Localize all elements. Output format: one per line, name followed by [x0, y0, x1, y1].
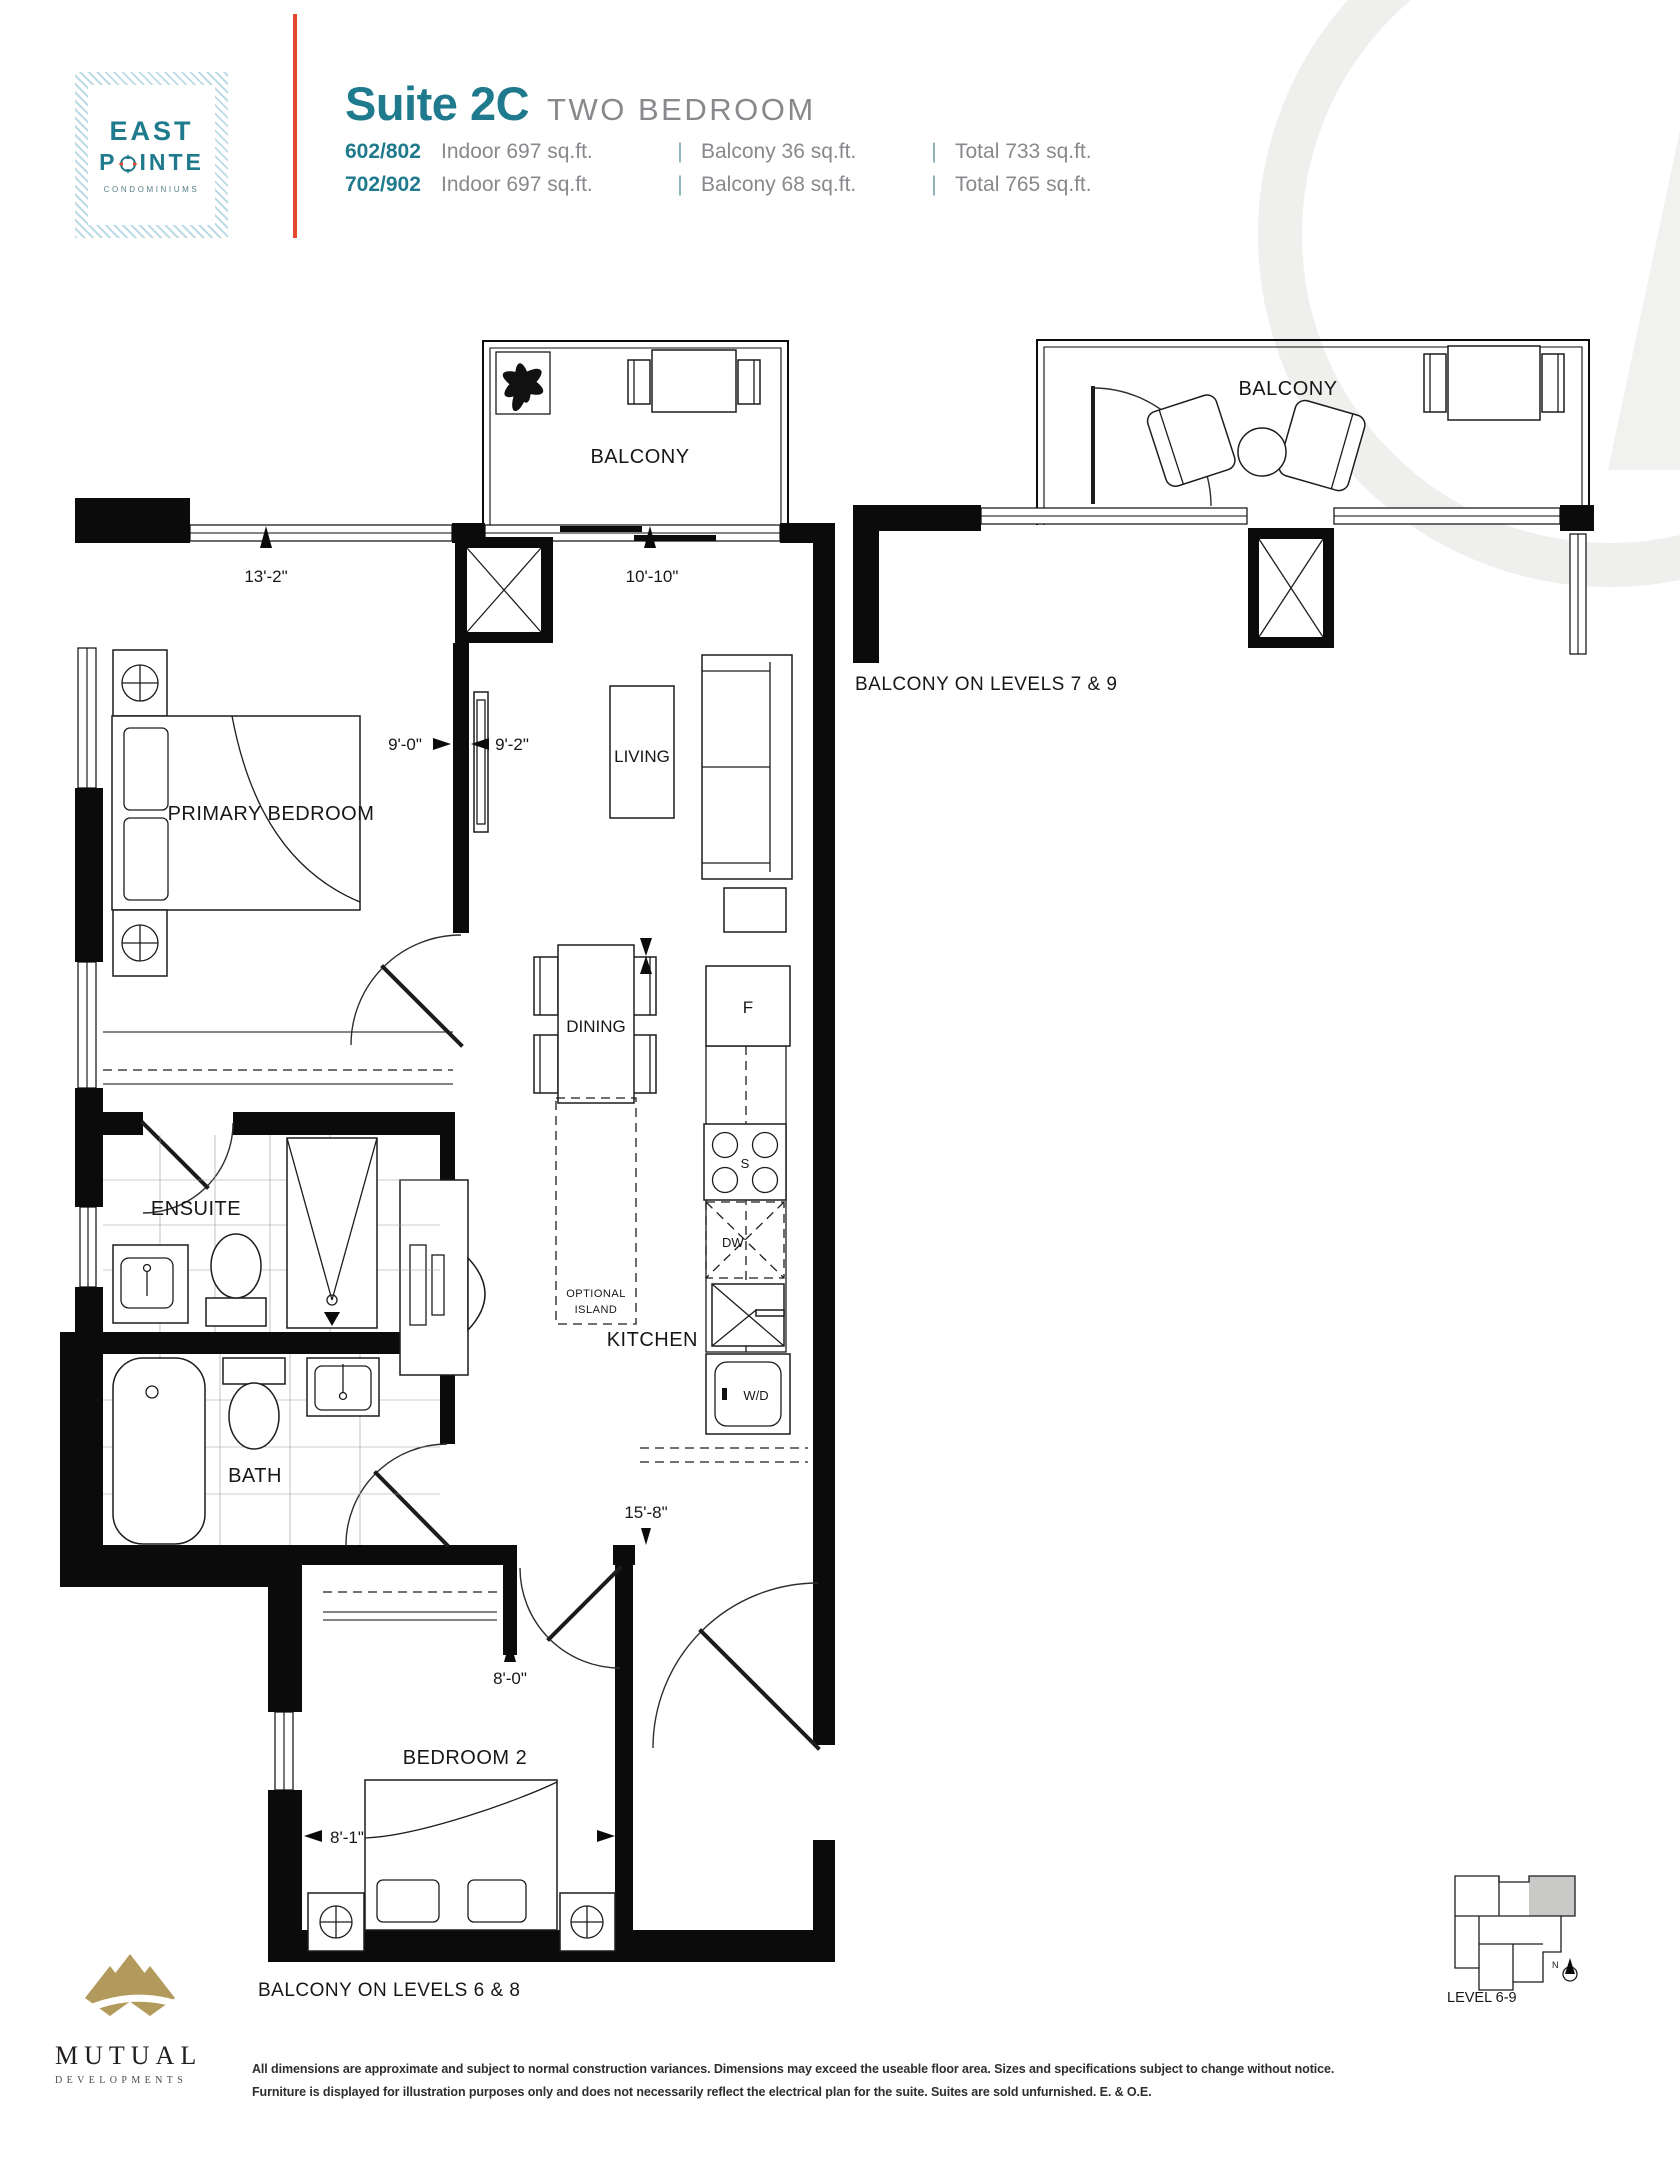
fridge-label: F — [743, 998, 753, 1017]
optional-island-label-2: ISLAND — [575, 1304, 618, 1316]
dim-primary-width: 13'-2" — [244, 567, 287, 586]
alt-room-label-balcony: BALCONY — [1238, 378, 1337, 400]
alt-dining-table — [1424, 346, 1564, 420]
bedroom2-bed — [308, 1780, 615, 1951]
keyplan-level-label: LEVEL 6-9 — [1447, 1990, 1517, 2006]
bath-toilet — [223, 1358, 285, 1449]
disclaimer: All dimensions are approximate and subje… — [252, 2058, 1342, 2104]
plant-icon — [496, 352, 550, 414]
dishwasher: DW — [706, 1202, 784, 1278]
developer-name: MUTUAL — [55, 2041, 245, 2071]
dim-living-depth: 9'-2" — [495, 735, 529, 754]
room-label-primary-bedroom: PRIMARY BEDROOM — [168, 803, 375, 825]
dim-living-width: 10'-10" — [626, 567, 679, 586]
round-table — [1238, 428, 1286, 476]
bath-sink — [307, 1358, 379, 1416]
room-label-balcony: BALCONY — [590, 446, 689, 468]
bedroom2-door — [520, 1568, 620, 1668]
floorplan-page: EAST P INTE CONDOMINIUMS Suite 2 — [0, 0, 1680, 2174]
balcony-table — [628, 350, 760, 412]
ensuite-sink — [113, 1245, 188, 1323]
window-top-bedroom — [190, 525, 452, 541]
optional-island: OPTIONAL ISLAND — [556, 1098, 636, 1324]
bathtub — [113, 1358, 205, 1544]
kitchen-sink — [712, 1284, 784, 1346]
room-label-bath: BATH — [228, 1465, 282, 1487]
alt-window-right — [1334, 508, 1560, 524]
north-compass-icon: N — [1552, 1958, 1577, 1981]
room-label-ensuite: ENSUITE — [151, 1198, 241, 1220]
ensuite-toilet — [206, 1234, 266, 1326]
window-left-1 — [78, 648, 96, 788]
mutual-logo-mark — [55, 1950, 205, 2030]
dim-primary-depth: 9'-0" — [388, 735, 422, 754]
stove: S — [704, 1124, 786, 1200]
entry-door — [653, 1583, 818, 1748]
living-sofa — [702, 655, 792, 932]
washer-dryer: W/D — [706, 1354, 790, 1434]
note-balcony-levels-6-8: BALCONY ON LEVELS 6 & 8 — [258, 1980, 521, 2001]
alt-balcony-plan: BALCONY BALCONY ON LEVELS 7 & 9 — [853, 340, 1594, 695]
fridge: F — [706, 966, 790, 1046]
washer-dryer-label: W/D — [743, 1388, 768, 1403]
stove-label: S — [741, 1156, 750, 1171]
window-left-3 — [80, 1207, 96, 1287]
key-plan: N LEVEL 6-9 — [1447, 1876, 1577, 2006]
dishwasher-label: DW — [722, 1235, 744, 1250]
dim-hall-length: 15'-8" — [624, 1503, 667, 1522]
note-balcony-levels-7-9: BALCONY ON LEVELS 7 & 9 — [855, 674, 1118, 695]
disclaimer-line2: Furniture is displayed for illustration … — [252, 2081, 1342, 2104]
shower — [287, 1138, 377, 1328]
dim-bedroom2-width: 8'-0" — [493, 1669, 527, 1688]
optional-island-label-1: OPTIONAL — [566, 1288, 626, 1300]
mutual-developments-logo: MUTUAL DEVELOPMENTS — [55, 1950, 245, 2086]
disclaimer-line1: All dimensions are approximate and subje… — [252, 2058, 1342, 2081]
bath-door — [346, 1444, 447, 1545]
room-label-living: LIVING — [614, 747, 670, 766]
main-floor-plan: BALCONY — [60, 341, 835, 2001]
room-label-bedroom2: BEDROOM 2 — [403, 1747, 528, 1769]
window-left-2 — [78, 962, 96, 1088]
floor-plan-svg: BALCONY — [0, 0, 1680, 2174]
bedroom2-room: BEDROOM 2 — [308, 1592, 615, 1951]
lounge-chair-1 — [1145, 392, 1238, 488]
room-label-kitchen: KITCHEN — [607, 1329, 698, 1351]
dim-bedroom2-depth: 8'-1" — [330, 1828, 364, 1847]
developer-sub: DEVELOPMENTS — [55, 2075, 245, 2086]
alt-shaft — [1248, 528, 1334, 648]
shaft — [455, 537, 553, 643]
alt-window-right-wall — [1570, 534, 1586, 654]
window-bedroom2-left — [275, 1712, 293, 1790]
bath-room: BATH — [103, 1354, 440, 1545]
desk — [400, 1180, 485, 1375]
north-label: N — [1552, 1960, 1559, 1970]
alt-window-left — [981, 508, 1247, 524]
primary-bedroom-door — [351, 935, 461, 1045]
ensuite-room: ENSUITE — [103, 1135, 440, 1332]
room-label-dining: DINING — [566, 1017, 626, 1036]
keyplan-highlighted-unit — [1529, 1876, 1575, 1916]
